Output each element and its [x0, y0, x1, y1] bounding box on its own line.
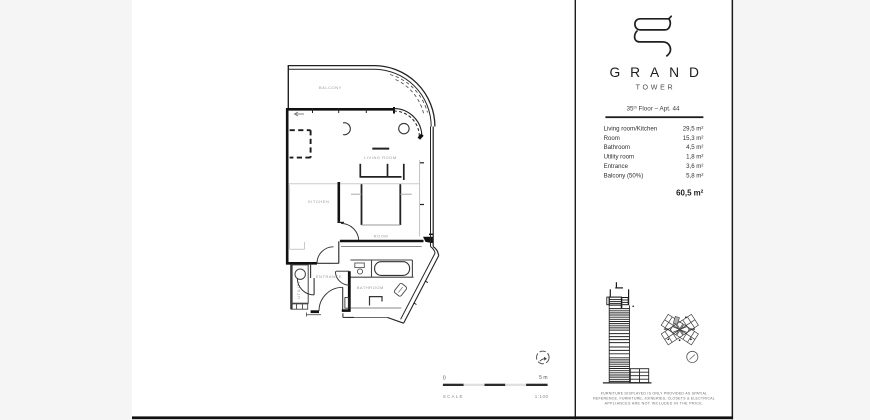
svg-text:15,3 m²: 15,3 m²: [683, 135, 704, 142]
svg-text:APPLIANCES ARE NOT INCLUDED IN: APPLIANCES ARE NOT INCLUDED IN THE PRICE…: [605, 402, 704, 406]
svg-text:60,5 m²: 60,5 m²: [676, 188, 704, 197]
svg-text:Utility room: Utility room: [604, 154, 634, 161]
svg-text:SCALE: SCALE: [443, 394, 464, 399]
svg-text:Entrance: Entrance: [604, 163, 629, 170]
svg-text:BATHROOM: BATHROOM: [357, 285, 384, 290]
svg-text:Living room/Kitchen: Living room/Kitchen: [604, 125, 658, 132]
svg-text:1:100: 1:100: [535, 394, 549, 399]
svg-text:Bathroom: Bathroom: [604, 144, 630, 151]
svg-text:UTILITY: UTILITY: [296, 280, 301, 298]
svg-text:1,8 m²: 1,8 m²: [686, 154, 703, 161]
svg-text:BALCONY: BALCONY: [319, 85, 342, 90]
svg-text:5 m: 5 m: [539, 375, 547, 381]
svg-text:GRAND: GRAND: [610, 65, 709, 80]
svg-text:REFERENCE. FURNITURE, JOINERIE: REFERENCE. FURNITURE, JOINERIES, CLOSETS…: [593, 397, 715, 401]
svg-text:LIVING ROOM: LIVING ROOM: [364, 155, 397, 160]
svg-text:4,5 m²: 4,5 m²: [686, 144, 703, 151]
svg-text:Room: Room: [604, 135, 620, 142]
svg-text:Balcony (50%): Balcony (50%): [604, 173, 644, 180]
svg-text:ROOM: ROOM: [374, 233, 389, 238]
svg-text:29,5 m²: 29,5 m²: [683, 125, 704, 132]
svg-text:ENTRANCE: ENTRANCE: [316, 274, 342, 279]
svg-text:KITCHEN: KITCHEN: [308, 199, 329, 204]
svg-text:TOWER: TOWER: [636, 84, 676, 92]
svg-text:3,6 m²: 3,6 m²: [686, 163, 703, 170]
svg-text:5,8 m²: 5,8 m²: [686, 173, 703, 180]
svg-text:FURNITURE DISPLAYED IS ONLY PR: FURNITURE DISPLAYED IS ONLY PROVIDED AS …: [601, 392, 708, 396]
svg-text:0: 0: [443, 376, 446, 382]
